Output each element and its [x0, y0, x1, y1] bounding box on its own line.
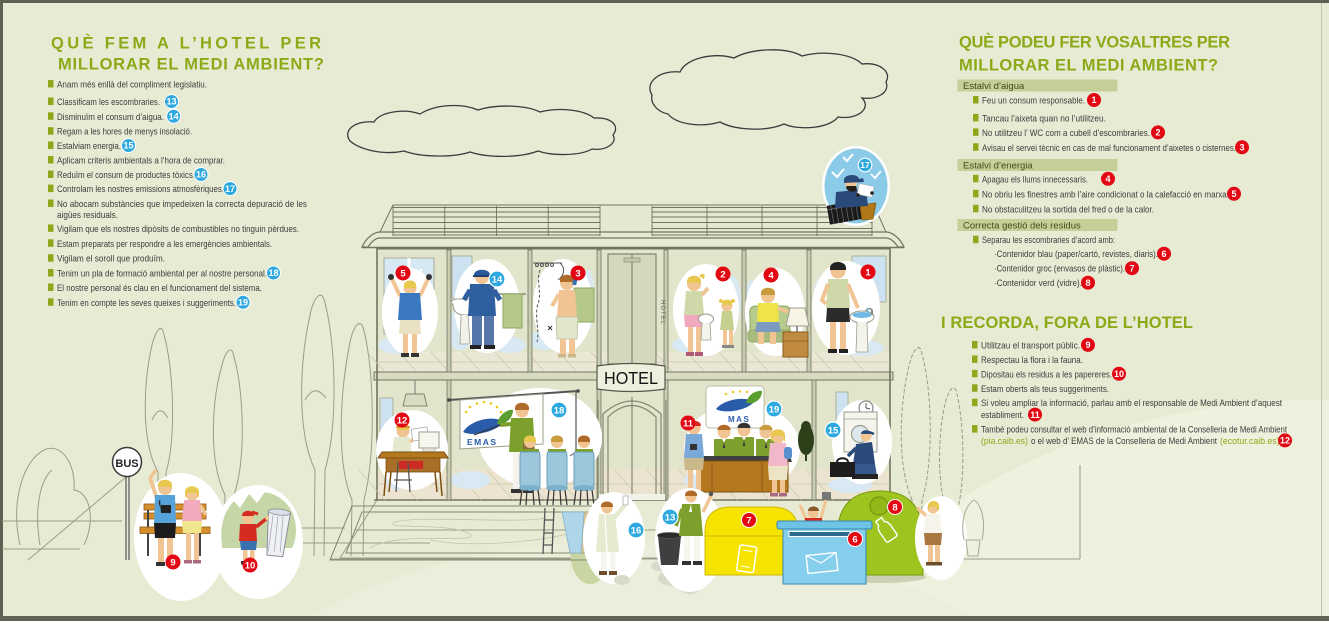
svg-text:5: 5 — [400, 269, 406, 280]
svg-text:4: 4 — [1105, 174, 1110, 184]
svg-text:Vigilam que els nostres dipòsi: Vigilam que els nostres dipòsits de comb… — [57, 224, 299, 235]
svg-text:Reduïm el consum de productes: Reduïm el consum de productes tòxics. — [57, 170, 195, 181]
svg-text:16: 16 — [196, 170, 206, 180]
svg-text:12: 12 — [397, 416, 408, 427]
svg-text:El nostre personal és clau en: El nostre personal és clau en el funcion… — [57, 283, 262, 294]
svg-text:Correcta gestió dels residus: Correcta gestió dels residus — [963, 221, 1081, 232]
svg-text:Estam oberts als teus suggerim: Estam oberts als teus suggeriments. — [981, 384, 1109, 395]
svg-text:MILLORAR EL MEDI AMBIENT?: MILLORAR EL MEDI AMBIENT? — [959, 57, 1218, 75]
svg-text:Feu un consum responsable.: Feu un consum responsable. — [982, 96, 1085, 107]
svg-text:BUS: BUS — [115, 458, 138, 470]
svg-text:No obstaculitzeu la sortida de: No obstaculitzeu la sortida del fred o d… — [982, 204, 1154, 215]
svg-text:14: 14 — [492, 275, 503, 286]
svg-text:QUÈ FEM A L’HOTEL PER: QUÈ FEM A L’HOTEL PER — [51, 34, 321, 53]
svg-text:10: 10 — [1114, 369, 1124, 379]
svg-text:18: 18 — [554, 406, 565, 417]
svg-text:Classificam les escombraries.: Classificam les escombraries. — [57, 97, 160, 108]
svg-text:Anam més enllà del compliment: Anam més enllà del compliment legislatiu… — [57, 80, 207, 91]
svg-text:9: 9 — [1085, 340, 1090, 350]
svg-text:Regam a les hores de menys ins: Regam a les hores de menys insolació. — [57, 127, 192, 138]
svg-text:Controlam les nostres emission: Controlam les nostres emissions atmosfèr… — [57, 184, 224, 195]
svg-text:També podeu consultar el web d: També podeu consultar el web d’informaci… — [981, 425, 1287, 436]
svg-text:Tenim en compte les seves quei: Tenim en compte les seves queixes i sugg… — [57, 298, 236, 309]
svg-text:Si voleu ampliar la informació: Si voleu ampliar la informació, parlau a… — [981, 398, 1282, 409]
svg-text:Utilitzau el transport públic.: Utilitzau el transport públic. — [981, 340, 1080, 351]
svg-text:17: 17 — [860, 160, 870, 170]
svg-text:4: 4 — [768, 271, 774, 282]
svg-text:HOTEL: HOTEL — [604, 368, 658, 388]
svg-text:7: 7 — [746, 516, 751, 527]
svg-text:8: 8 — [1085, 278, 1090, 288]
svg-text:·Contenidor verd (vidre).: ·Contenidor verd (vidre). — [994, 278, 1082, 289]
svg-text:1: 1 — [1091, 95, 1096, 105]
svg-text:o el web d’ EMAS de la Consell: o el web d’ EMAS de la Conselleria de Me… — [1031, 436, 1217, 447]
svg-text:13: 13 — [665, 513, 676, 524]
svg-text:Apagau els llums innecessaris.: Apagau els llums innecessaris. — [982, 174, 1088, 185]
svg-text:Estalvi d’aigua: Estalvi d’aigua — [963, 81, 1025, 92]
svg-text:I RECORDA, FORA DE L’HOTEL: I RECORDA, FORA DE L’HOTEL — [941, 314, 1193, 332]
svg-text:16: 16 — [631, 526, 642, 537]
svg-text:aigües residuals.: aigües residuals. — [57, 210, 118, 221]
svg-text:3: 3 — [1239, 143, 1244, 153]
svg-text:9: 9 — [170, 558, 175, 569]
svg-text:10: 10 — [245, 561, 256, 572]
svg-text:15: 15 — [828, 426, 839, 437]
svg-text:establiment.: establiment. — [981, 410, 1024, 421]
svg-text:Separau les escombraries d’aco: Separau les escombraries d’acord amb: — [982, 235, 1115, 246]
svg-text:8: 8 — [892, 503, 897, 514]
svg-text:Respectau la flora i la fauna.: Respectau la flora i la fauna. — [981, 355, 1083, 366]
svg-text:14: 14 — [169, 112, 179, 122]
svg-text:Estalvi d’energia: Estalvi d’energia — [963, 161, 1033, 172]
svg-text:17: 17 — [225, 184, 235, 194]
svg-text:MAS: MAS — [728, 415, 750, 424]
svg-text:1: 1 — [865, 268, 871, 279]
svg-text:Disminuïm el consum d’aigua.: Disminuïm el consum d’aigua. — [57, 112, 164, 123]
svg-text:Tancau l’aixeta quan no l’util: Tancau l’aixeta quan no l’utilitzeu. — [982, 113, 1106, 124]
svg-text:11: 11 — [683, 419, 694, 430]
svg-text:·Contenidor groc (envasos de p: ·Contenidor groc (envasos de plàstic). — [994, 264, 1125, 275]
svg-text:No obriu les finestres amb l’a: No obriu les finestres amb l’aire condic… — [982, 189, 1229, 200]
svg-text:QUÈ PODEU FER VOSALTRES PER: QUÈ PODEU FER VOSALTRES PER — [959, 33, 1230, 52]
svg-text:5: 5 — [1231, 189, 1236, 199]
svg-text:EMAS: EMAS — [467, 437, 498, 447]
svg-text:3: 3 — [575, 269, 580, 280]
svg-text:6: 6 — [852, 535, 857, 546]
svg-text:No abocam substàncies que impe: No abocam substàncies que impedeixen la … — [57, 199, 307, 210]
svg-text:19: 19 — [769, 405, 780, 416]
svg-text:13: 13 — [166, 97, 176, 107]
svg-text:15: 15 — [123, 141, 133, 151]
svg-text:11: 11 — [1030, 410, 1040, 420]
svg-text:(pia.caib.es): (pia.caib.es) — [981, 436, 1028, 447]
svg-text:No utilitzeu l’ WC com a cubel: No utilitzeu l’ WC com a cubell d’escomb… — [982, 128, 1150, 139]
svg-text:(ecotur.caib.es).: (ecotur.caib.es). — [1220, 436, 1282, 447]
svg-text:Avisau el servei tècnic en cas: Avisau el servei tècnic en cas de mal fu… — [982, 143, 1236, 154]
svg-text:Estam preparats per respondre: Estam preparats per respondre a les emer… — [57, 239, 272, 250]
svg-text:12: 12 — [1280, 436, 1290, 446]
svg-text:2: 2 — [720, 270, 725, 281]
svg-text:Vigilam el soroll que produïm.: Vigilam el soroll que produïm. — [57, 254, 165, 265]
svg-text:7: 7 — [1129, 263, 1134, 273]
svg-text:Tenim un pla de formació ambie: Tenim un pla de formació ambiental per a… — [57, 269, 267, 280]
svg-text:HOTEL: HOTEL — [659, 300, 665, 325]
svg-text:18: 18 — [268, 268, 278, 278]
svg-text:6: 6 — [1161, 249, 1166, 259]
svg-text:Estalviam energia.: Estalviam energia. — [57, 141, 121, 152]
svg-text:2: 2 — [1155, 128, 1160, 138]
svg-text:Dipositau els residus a les pa: Dipositau els residus a les papereres. — [981, 369, 1112, 380]
svg-text:Aplicam criteris ambientals a: Aplicam criteris ambientals a l’hora de … — [57, 156, 225, 167]
svg-text:MILLORAR EL MEDI AMBIENT?: MILLORAR EL MEDI AMBIENT? — [58, 56, 324, 74]
svg-text:19: 19 — [238, 298, 248, 308]
svg-text:·Contenidor blau (paper/cartó,: ·Contenidor blau (paper/cartó, revistes,… — [994, 249, 1158, 260]
